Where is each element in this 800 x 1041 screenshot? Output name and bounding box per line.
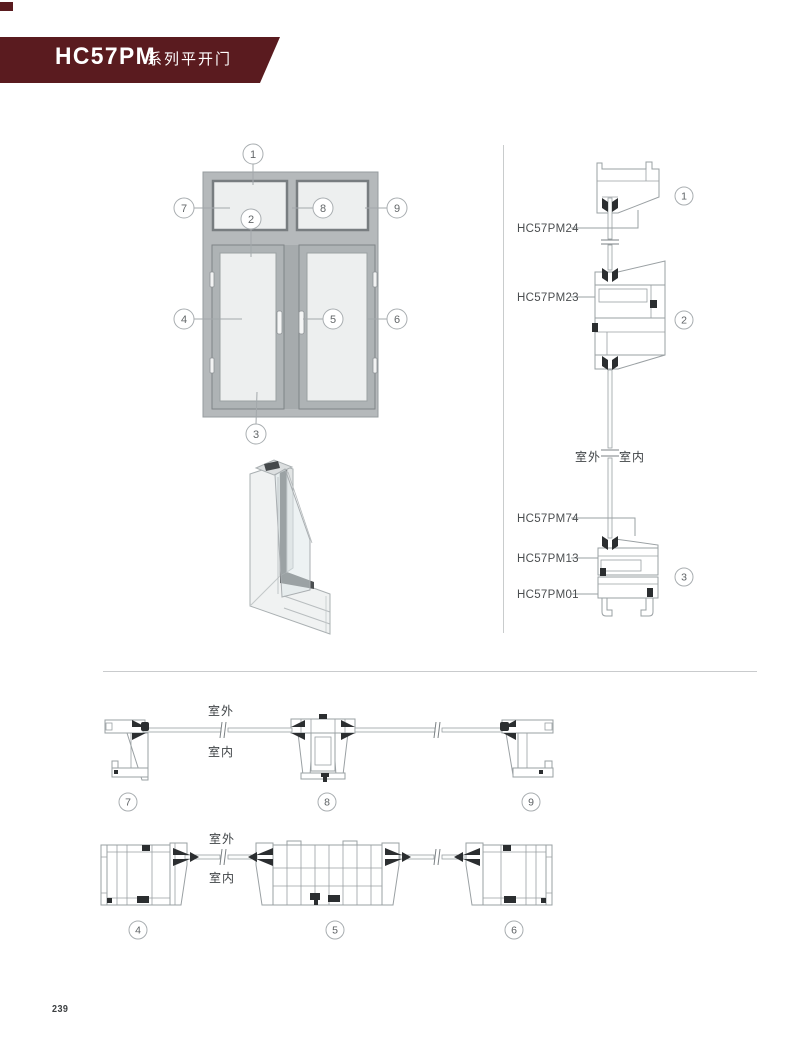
indoor-label: 室内	[619, 449, 645, 464]
profile-label-hc57pm23: HC57PM23	[517, 292, 579, 304]
plan-section-top-drawing: 室外 室内 7 8 9	[95, 695, 565, 820]
indoor-label: 室内	[208, 744, 234, 759]
catalog-page: HC57PM 系列平开门	[0, 0, 800, 1041]
profile-label-hc57pm24: HC57PM24	[517, 223, 579, 235]
plan-callout-7: 7	[125, 797, 131, 809]
door-elevation-drawing: 1 2 3 4 5 6 7 8 9	[160, 140, 420, 450]
glazing-gaskets	[592, 198, 657, 597]
callout-7: 7	[181, 203, 187, 215]
series-subtitle: 系列平开门	[147, 52, 232, 67]
section-callout-1: 1	[681, 191, 687, 203]
callout-8: 8	[320, 203, 326, 215]
outdoor-label: 室外	[209, 831, 235, 846]
plan-callout-5: 5	[332, 925, 338, 937]
plan-bottom-callouts	[129, 921, 523, 939]
outdoor-label: 室外	[575, 449, 601, 464]
page-number: 239	[52, 1004, 68, 1015]
section-callout-2: 2	[681, 315, 687, 327]
profile-label-hc57pm01: HC57PM01	[517, 589, 579, 601]
callout-5: 5	[330, 314, 336, 326]
plan-callout-4: 4	[135, 925, 141, 937]
door-frame	[203, 172, 378, 417]
callout-2: 2	[248, 214, 254, 226]
section-leader-lines	[571, 210, 638, 594]
horizontal-divider-line	[103, 671, 757, 672]
section-callouts	[675, 187, 693, 586]
indoor-label: 室内	[209, 870, 235, 885]
callout-9: 9	[394, 203, 400, 215]
outdoor-label: 室外	[208, 703, 234, 718]
plan-section-bottom-drawing: 室外 室内 4 5 6	[95, 828, 565, 943]
section-callout-3: 3	[681, 572, 687, 584]
plan-callout-6: 6	[511, 925, 517, 937]
callout-6: 6	[394, 314, 400, 326]
series-title: HC57PM	[55, 45, 156, 69]
corner-tab	[0, 2, 13, 11]
vertical-section-drawing: HC57PM24 HC57PM23 HC57PM74 HC57PM13 HC57…	[505, 140, 720, 650]
profile-label-hc57pm74: HC57PM74	[517, 513, 579, 525]
vertical-divider-line	[503, 145, 504, 633]
plan-callout-9: 9	[528, 797, 534, 809]
callout-1: 1	[250, 149, 256, 161]
plan-bottom-profiles	[101, 841, 552, 905]
callout-4: 4	[181, 314, 187, 326]
profile-label-hc57pm13: HC57PM13	[517, 553, 579, 565]
callout-3: 3	[253, 429, 259, 441]
meeting-gap	[284, 245, 299, 409]
corner-3d-drawing	[230, 450, 370, 640]
plan-callout-8: 8	[324, 797, 330, 809]
